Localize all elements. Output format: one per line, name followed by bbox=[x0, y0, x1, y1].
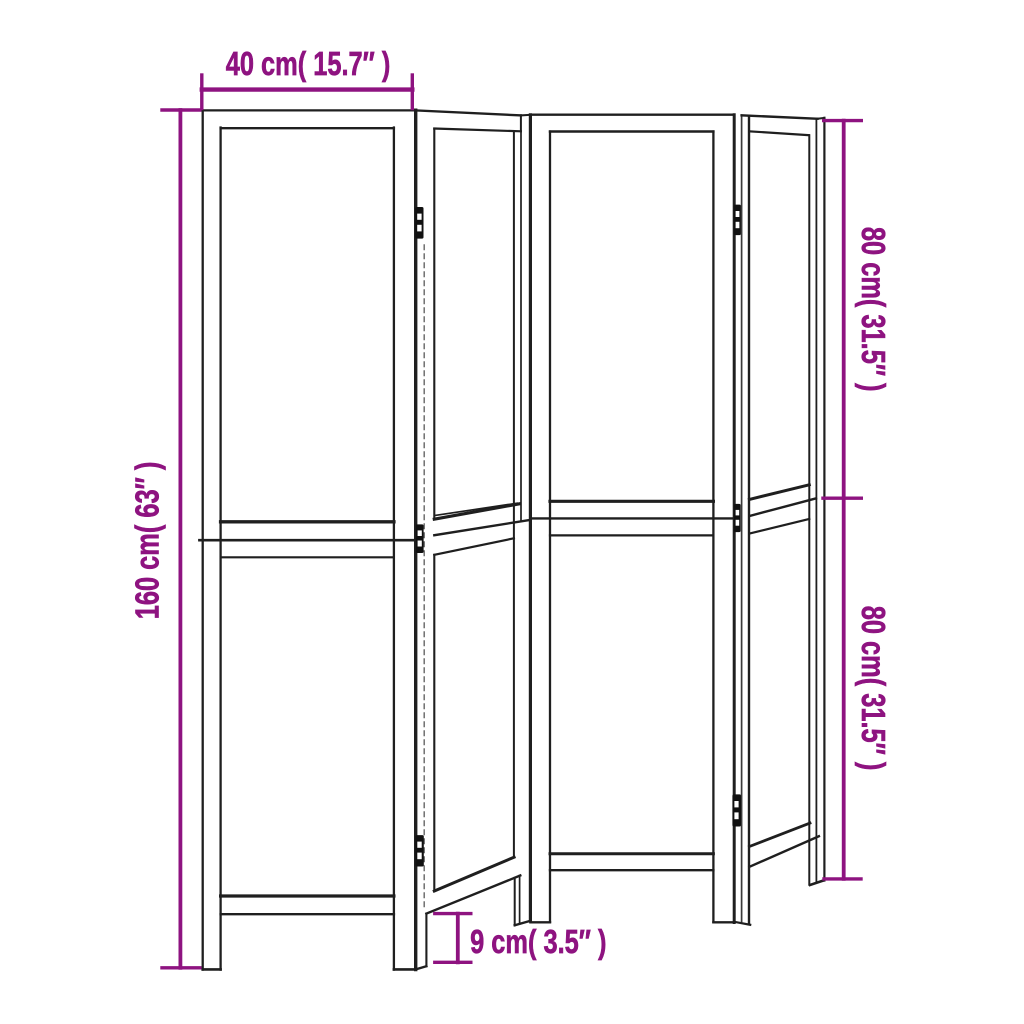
svg-text:80 cm( 31.5″ ): 80 cm( 31.5″ ) bbox=[854, 227, 891, 392]
svg-text:160 cm( 63″ ): 160 cm( 63″ ) bbox=[129, 462, 166, 620]
svg-text:9 cm( 3.5″ ): 9 cm( 3.5″ ) bbox=[470, 924, 606, 961]
svg-text:40 cm( 15.7″ ): 40 cm( 15.7″ ) bbox=[226, 46, 391, 83]
svg-text:80 cm( 31.5″ ): 80 cm( 31.5″ ) bbox=[854, 606, 891, 771]
